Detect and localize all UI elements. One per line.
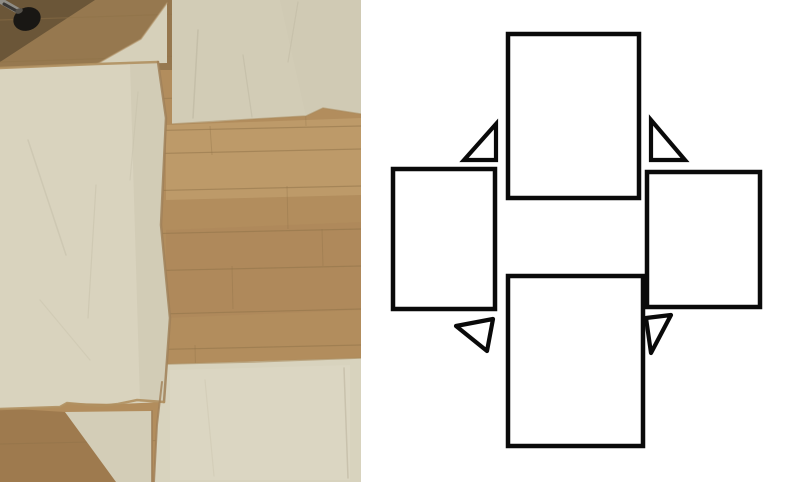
- diagram-rect-bottom: [508, 276, 643, 446]
- layout-diagram-panel: [361, 0, 800, 482]
- diagram-triangle-lower-left: [456, 319, 493, 351]
- diagram-triangle-upper-left: [464, 124, 496, 160]
- diagram-rect-left: [393, 169, 495, 309]
- diagram-triangle-lower-right: [646, 315, 671, 353]
- diagram-svg: [361, 0, 800, 482]
- photo-svg: [0, 0, 361, 482]
- diagram-triangle-upper-right: [651, 120, 685, 160]
- diagram-rect-right: [647, 172, 760, 307]
- figure: [0, 0, 800, 482]
- fabric-light-bottom: [170, 365, 350, 480]
- diagram-rect-top: [508, 34, 639, 198]
- fabric-photo-panel: [0, 0, 361, 482]
